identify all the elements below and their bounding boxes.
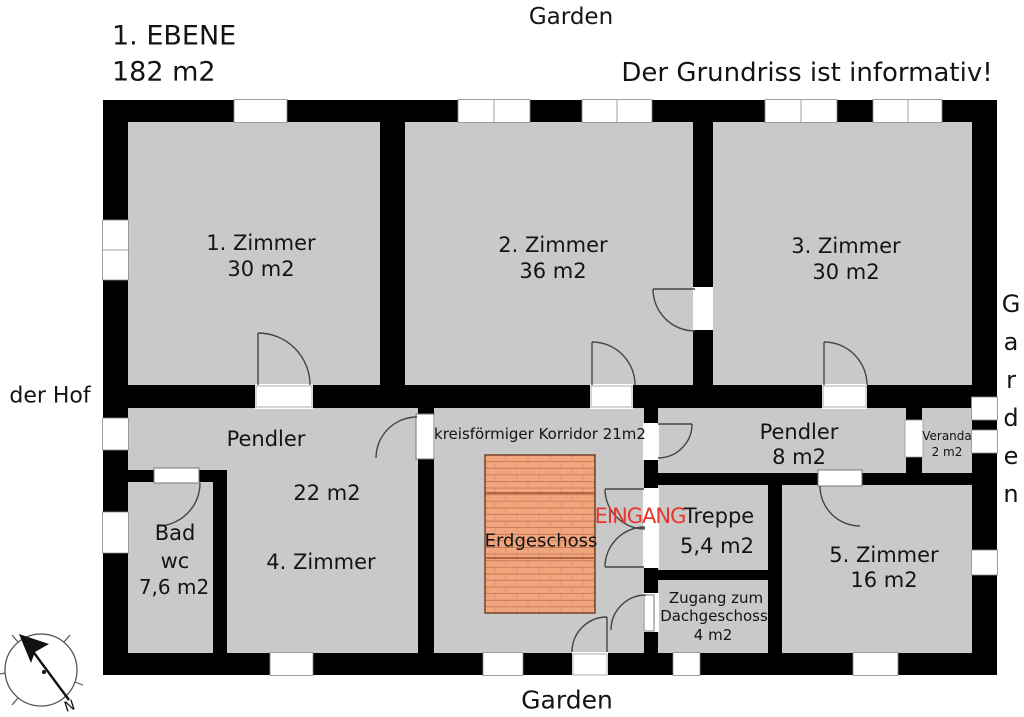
veranda-name: Veranda [922,429,972,443]
compass-n-label: N [62,697,77,715]
disclaimer: Der Grundriss ist informativ! [621,58,992,88]
room3-area: 30 m2 [812,260,879,284]
room2-area: 36 m2 [519,259,586,283]
garden-top-label: Garden [529,4,613,30]
wc-label: wc [161,549,190,573]
zugang-area: 4 m2 [694,626,732,644]
room1-name: 1. Zimmer [206,231,315,255]
floorplan-page: N 1. EBENE 182 m2 Garden Der Grundriss i… [0,0,1024,717]
garden-bottom-label: Garden [521,686,613,715]
bad-label: Bad [155,521,196,545]
compass-north-icon: N [0,634,83,716]
treppe-name: Treppe [684,504,754,528]
hof-label: der Hof [9,384,90,409]
room5-area: 16 m2 [850,568,917,592]
zugang-line1: Zugang zum [669,589,763,607]
room2-name: 2. Zimmer [498,233,607,257]
zugang-line2: Dachgeschoss [660,607,768,625]
bad-area: 7,6 m2 [139,575,209,599]
treppe-area: 5,4 m2 [680,534,754,558]
level-title: 1. EBENE [112,21,236,52]
room4-pendler-label: Pendler [227,427,306,451]
veranda-area: 2 m2 [932,445,963,459]
room1-area: 30 m2 [227,257,294,281]
eingang-label: EINGANG [595,504,686,528]
korridor-label: kreisförmiger Korridor 21m2 [434,425,646,443]
floorplan-drawing: N [0,0,1024,717]
garden-right-label: Garden [997,290,1024,518]
room5-name: 5. Zimmer [829,543,938,567]
level-area: 182 m2 [112,57,216,88]
erdgeschoss-label: Erdgeschoss [485,531,598,552]
pendler2-area: 8 m2 [772,445,826,469]
room4-name: 4. Zimmer [266,550,375,574]
room4-area: 22 m2 [293,481,360,505]
room3-name: 3. Zimmer [791,234,900,258]
pendler2-name: Pendler [760,420,839,444]
